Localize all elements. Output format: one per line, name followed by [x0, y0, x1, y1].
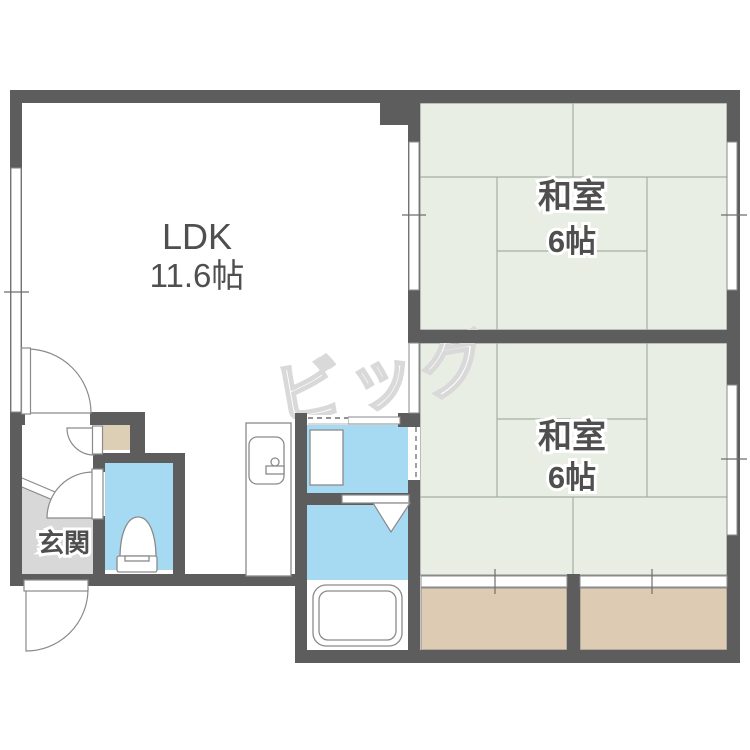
floorplan: ビッグ — [0, 0, 750, 750]
balcony-window-left — [421, 576, 567, 587]
balcony-right-floor — [580, 588, 727, 650]
ldk-door — [22, 348, 92, 414]
window-ldk-left — [11, 168, 21, 412]
opening-ldk-japanese-bottom — [409, 343, 419, 413]
wall-washroom-left — [295, 413, 307, 663]
wall-bottom-main — [295, 650, 740, 663]
kitchen-sink-icon — [246, 423, 291, 576]
japanese-room-bottom-area-label: 6帖 — [548, 460, 596, 495]
japanese-room-top-area-label: 6帖 — [548, 224, 596, 259]
japanese-room-bottom-label: 和室 — [538, 417, 606, 456]
wall-balcony-pillar — [567, 574, 580, 655]
wall-top-notch — [380, 103, 420, 125]
closet-door — [67, 426, 103, 455]
toilet-door — [47, 469, 103, 519]
ldk-label: LDK — [162, 216, 232, 257]
wall-divider-lower — [408, 480, 420, 663]
wall-closet-right — [130, 415, 145, 455]
fusuma-ldk-japanese-top — [409, 142, 419, 290]
washroom-counter-opening — [348, 417, 400, 424]
balcony-window-right — [580, 576, 727, 587]
wall-toilet-right — [173, 463, 185, 576]
floorplan-drawing: ビッグ — [0, 0, 750, 750]
window-japanese-bottom-right — [727, 385, 737, 535]
wall-toilet-top — [93, 453, 185, 463]
washing-machine-pan-icon — [310, 430, 343, 485]
ldk-area-label: 11.6帖 — [150, 257, 245, 294]
balcony-left-floor — [421, 588, 567, 650]
window-japanese-top-right — [727, 142, 737, 290]
closet-floor — [103, 425, 130, 450]
entrance-label: 玄関 — [38, 528, 90, 558]
wall-toilet-left-b — [93, 516, 105, 576]
bathtub-icon — [313, 585, 402, 646]
wall-between-japanese-rooms — [408, 330, 740, 343]
wall-divider-block — [398, 413, 420, 427]
entrance-door — [24, 580, 88, 651]
wall-top — [10, 90, 740, 103]
japanese-room-top-label: 和室 — [538, 177, 606, 216]
